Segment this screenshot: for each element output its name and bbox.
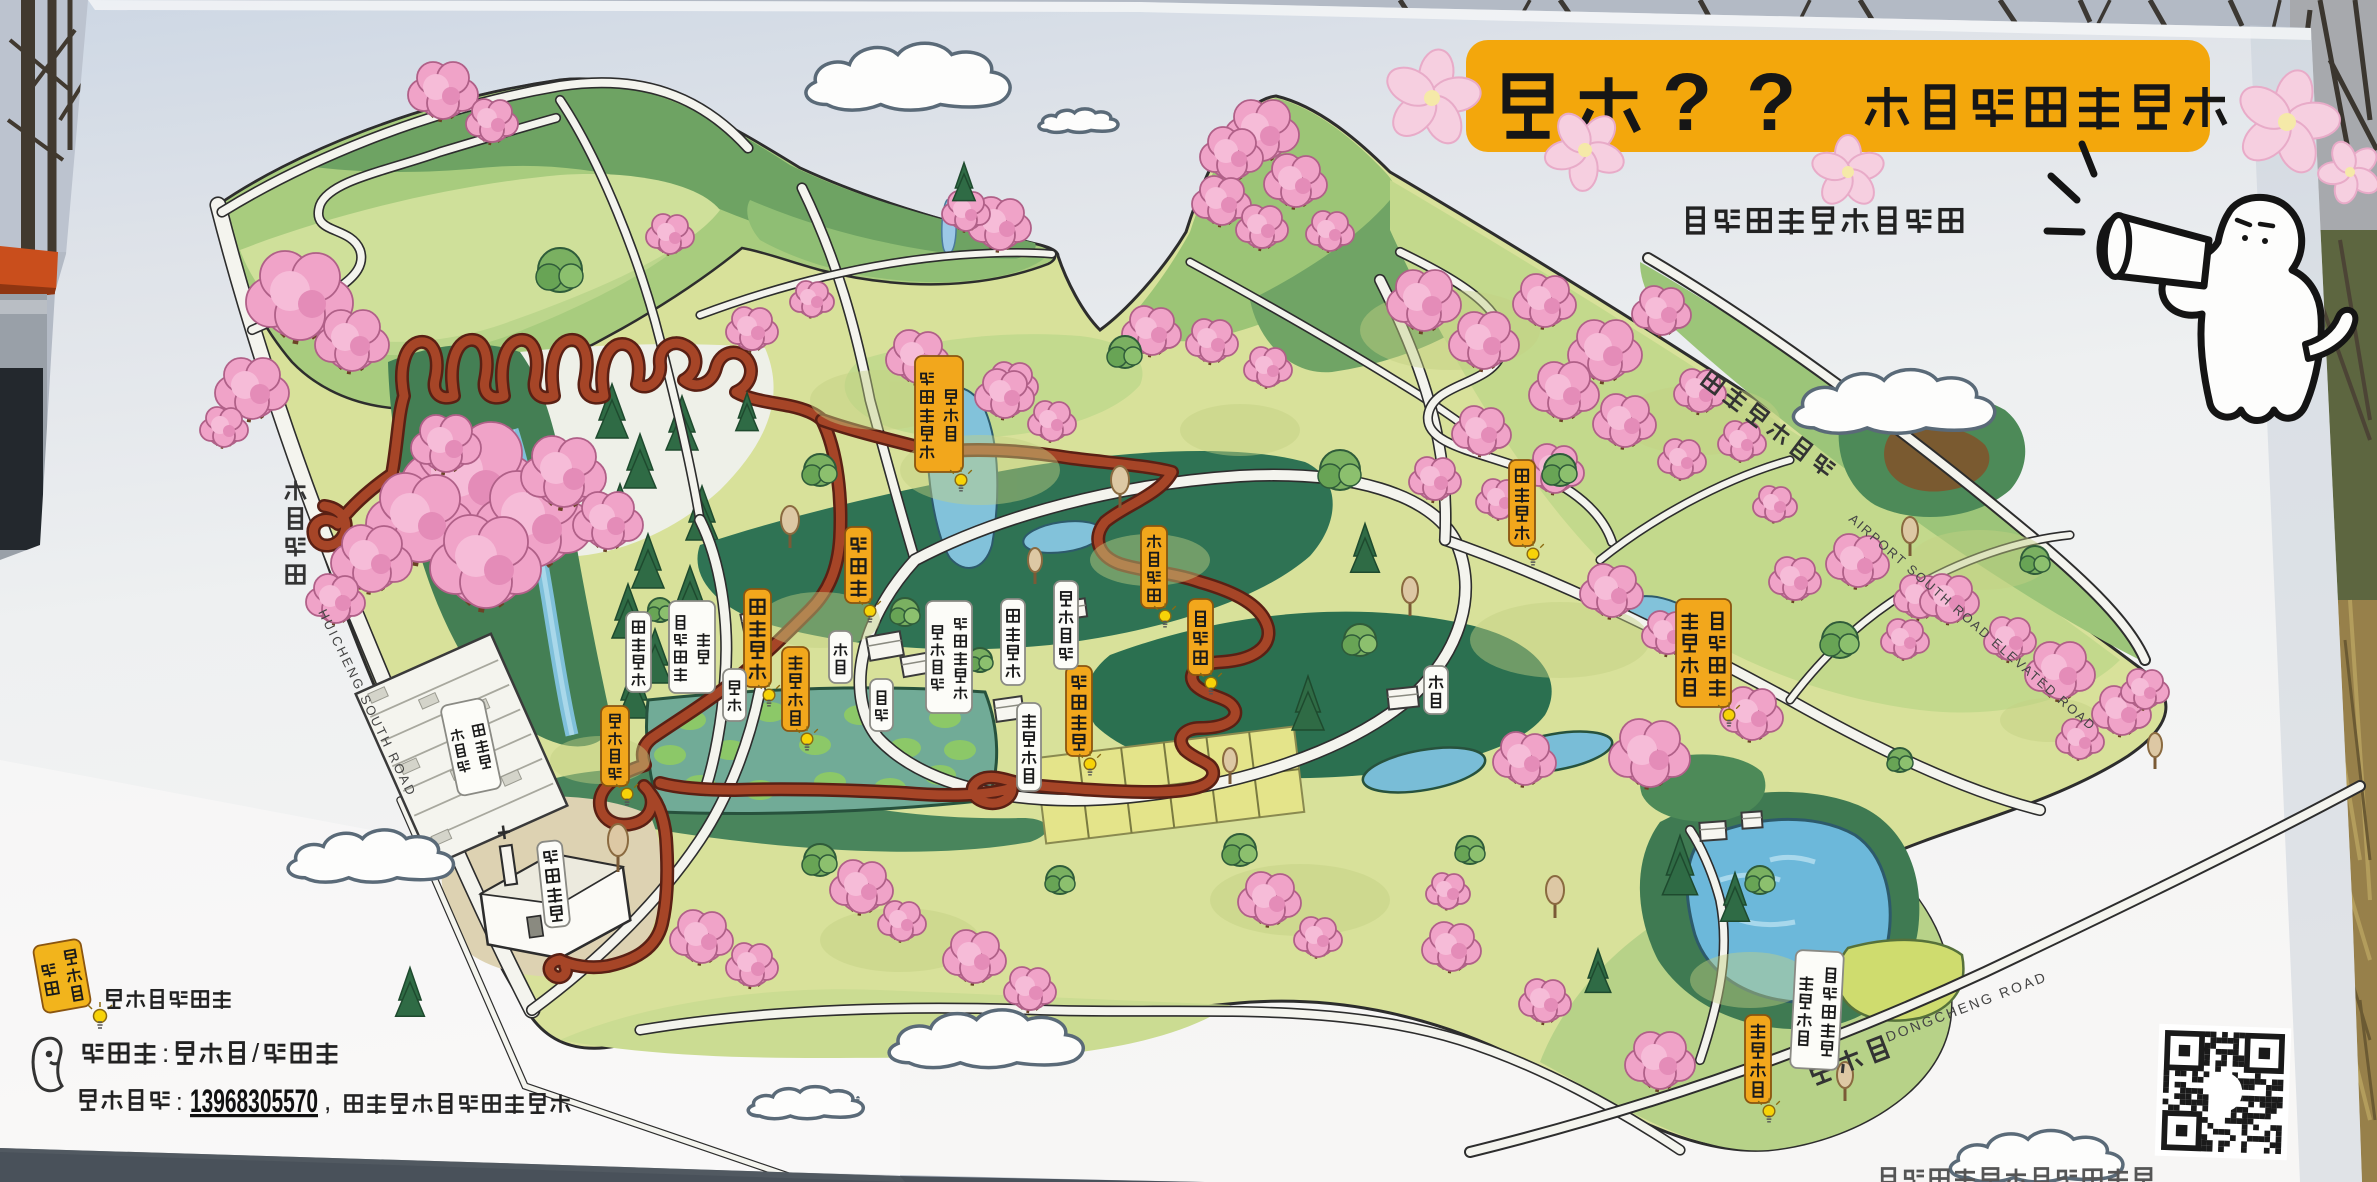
- svg-text:??: ??: [1662, 57, 1830, 148]
- svg-text:/: /: [252, 1038, 260, 1068]
- svg-text::: :: [162, 1038, 169, 1068]
- svg-text:13968305570: 13968305570: [190, 1083, 318, 1119]
- svg-text::: :: [176, 1089, 183, 1116]
- svg-text:,: ,: [324, 1086, 331, 1116]
